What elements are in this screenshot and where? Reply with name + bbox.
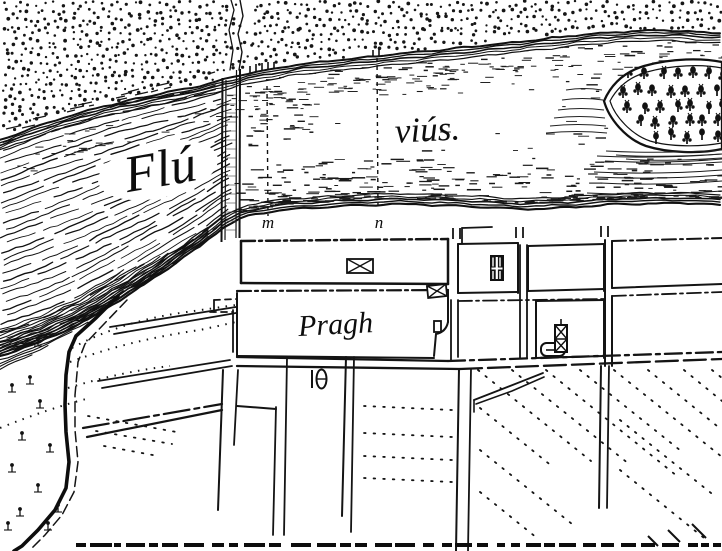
svg-text:n: n bbox=[375, 213, 384, 232]
svg-text:viús.: viús. bbox=[394, 108, 461, 150]
svg-text:Pragh: Pragh bbox=[296, 306, 374, 343]
svg-text:m: m bbox=[262, 213, 274, 232]
